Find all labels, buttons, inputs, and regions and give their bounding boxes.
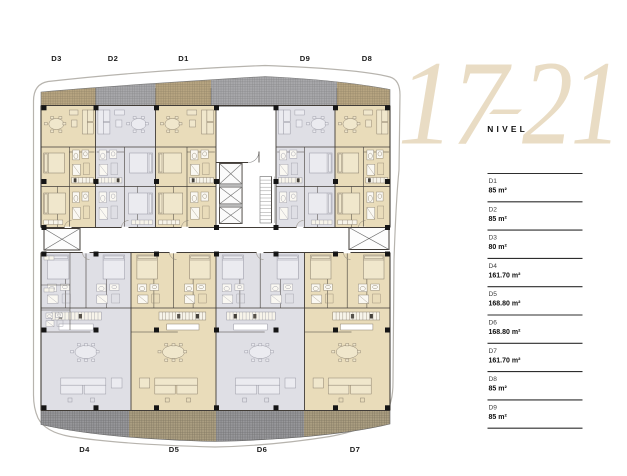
svg-text:D6: D6 (489, 320, 498, 327)
svg-text:85 m²: 85 m² (489, 188, 508, 195)
svg-text:85 m²: 85 m² (489, 216, 508, 223)
svg-text:D2: D2 (108, 54, 119, 63)
svg-text:21: 21 (522, 36, 619, 170)
svg-text:D1: D1 (178, 54, 189, 63)
svg-text:161.70 m²: 161.70 m² (489, 357, 522, 364)
svg-text:168.80 m²: 168.80 m² (489, 329, 522, 336)
svg-text:D5: D5 (169, 445, 180, 454)
svg-text:NIVEL: NIVEL (487, 124, 528, 134)
svg-text:D6: D6 (257, 445, 268, 454)
svg-text:85 m²: 85 m² (489, 386, 508, 393)
svg-text:D8: D8 (489, 376, 498, 383)
svg-text:D4: D4 (489, 263, 498, 270)
svg-text:17: 17 (398, 37, 513, 171)
svg-text:D4: D4 (79, 445, 90, 454)
svg-text:85 m²: 85 m² (489, 414, 508, 421)
svg-text:D1: D1 (489, 178, 498, 185)
svg-text:D2: D2 (489, 206, 498, 213)
svg-text:D3: D3 (51, 54, 62, 63)
svg-text:D5: D5 (489, 291, 498, 298)
svg-text:D3: D3 (489, 235, 498, 242)
svg-text:161.70 m²: 161.70 m² (489, 272, 522, 279)
svg-text:D9: D9 (489, 404, 498, 411)
svg-text:80 m²: 80 m² (489, 244, 508, 251)
svg-text:D7: D7 (350, 445, 361, 454)
svg-text:D7: D7 (489, 348, 498, 355)
svg-text:168.80 m²: 168.80 m² (489, 301, 522, 308)
svg-text:D9: D9 (300, 54, 311, 63)
svg-text:D8: D8 (362, 54, 373, 63)
